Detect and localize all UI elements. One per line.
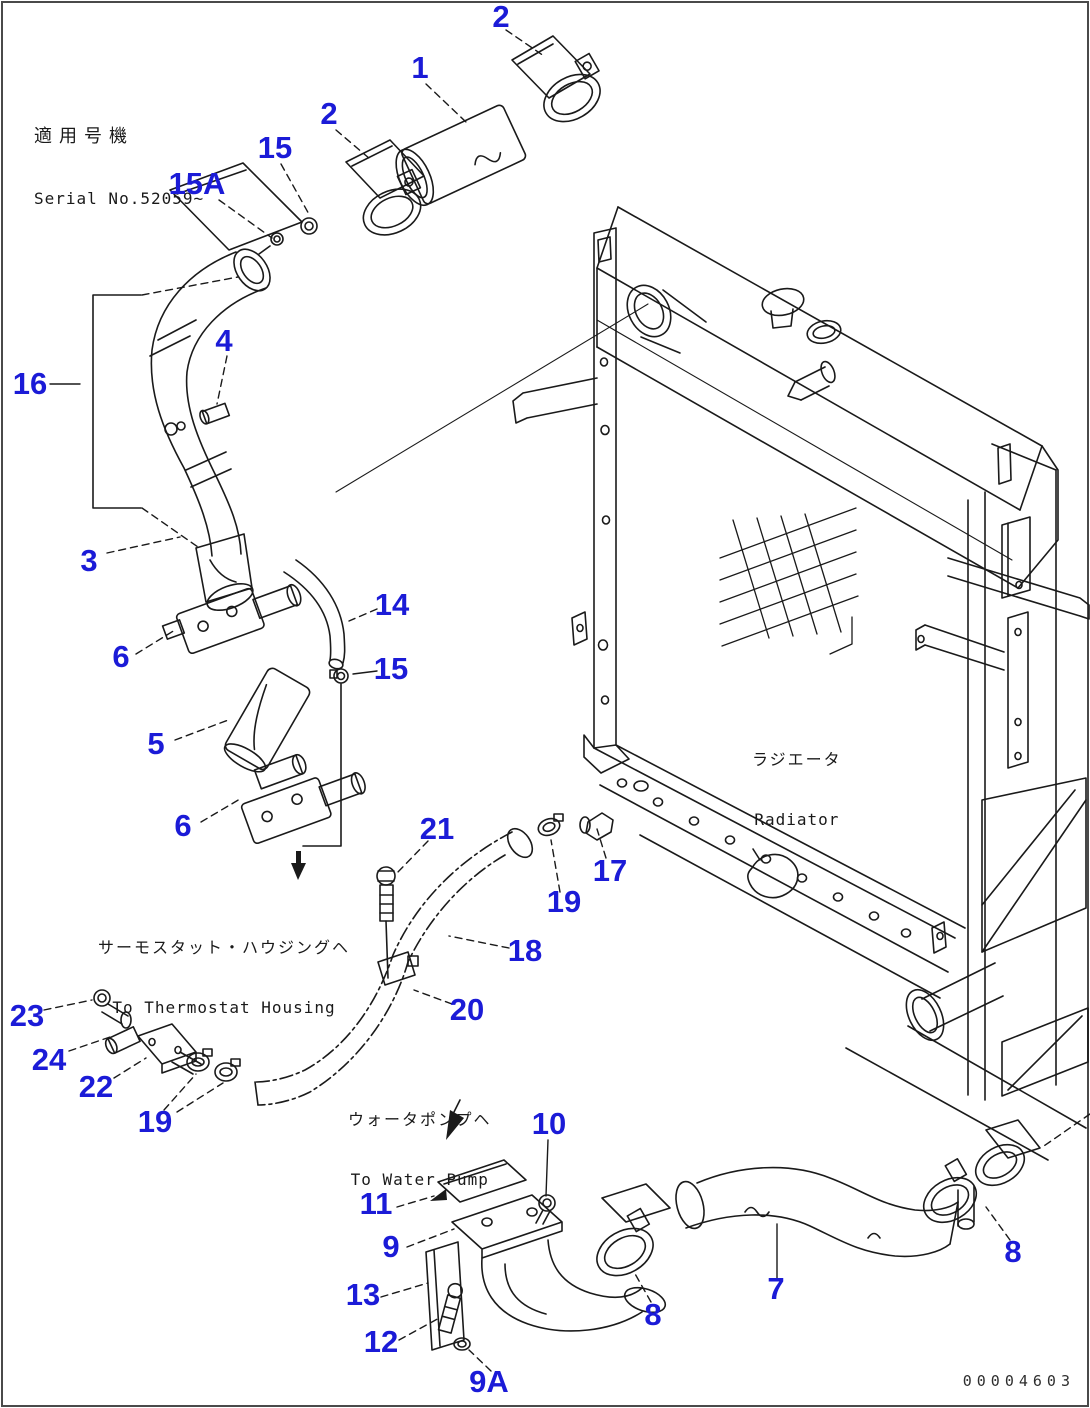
callout-6-bottom: 6 (174, 808, 191, 844)
thermostat-housing-label: サーモスタット・ハウジングヘ To Thermostat Housing (98, 898, 350, 1058)
callout-17: 17 (593, 853, 627, 889)
core-hatch-symbol (720, 508, 858, 654)
drawing-number: 00004603 (900, 1372, 1075, 1391)
callout-15A: 15A (169, 166, 226, 202)
callout-23: 23 (10, 998, 44, 1034)
callout-21: 21 (420, 811, 454, 847)
thermostat-label-jp: サーモスタット・ハウジングヘ (98, 938, 350, 958)
callout-19-bottom: 19 (138, 1104, 172, 1140)
callout-2-left: 2 (320, 96, 337, 132)
bottom-hose-drawing (584, 1120, 1040, 1285)
callout-15-mid: 15 (374, 651, 408, 687)
applicable-machine-label: 適用号機 (34, 126, 204, 149)
callout-9A: 9A (469, 1364, 509, 1400)
callout-11: 11 (360, 1186, 393, 1222)
callout-19-top: 19 (547, 884, 581, 920)
parts-diagram-page: 適用号機 Serial No.52059~ ラジエータ Radiator サーモ… (0, 0, 1090, 1408)
water-pump-label-jp: ウォータポンプヘ (348, 1110, 492, 1130)
callout-3: 3 (80, 543, 97, 579)
callout-13: 13 (346, 1277, 380, 1313)
callout-10: 10 (532, 1106, 566, 1142)
callout-24: 24 (32, 1042, 66, 1078)
radiator-label-en: Radiator (752, 810, 842, 830)
radiator-label: ラジエータ Radiator (752, 710, 842, 870)
inlet-tube-drawing (93, 243, 277, 616)
callout-14: 14 (375, 587, 409, 623)
callout-22: 22 (79, 1069, 113, 1105)
callout-9: 9 (382, 1229, 399, 1265)
callout-7: 7 (767, 1271, 784, 1307)
radiator-label-jp: ラジエータ (752, 750, 842, 770)
callout-1: 1 (411, 50, 428, 86)
thermostat-arrow-icon (291, 851, 306, 880)
callout-8-right: 8 (1004, 1234, 1021, 1270)
callout-8-left: 8 (644, 1297, 661, 1333)
callout-12: 12 (364, 1324, 398, 1360)
callout-15-top: 15 (258, 130, 292, 166)
callout-2-top: 2 (492, 0, 509, 35)
upper-hose-group-drawing (170, 36, 615, 254)
callout-18: 18 (508, 933, 542, 969)
callout-5: 5 (147, 726, 164, 762)
thermostat-label-en: To Thermostat Housing (98, 998, 350, 1018)
callout-20: 20 (450, 992, 484, 1028)
callout-4: 4 (215, 323, 232, 359)
callout-16: 16 (13, 366, 47, 402)
callout-6-top: 6 (112, 639, 129, 675)
